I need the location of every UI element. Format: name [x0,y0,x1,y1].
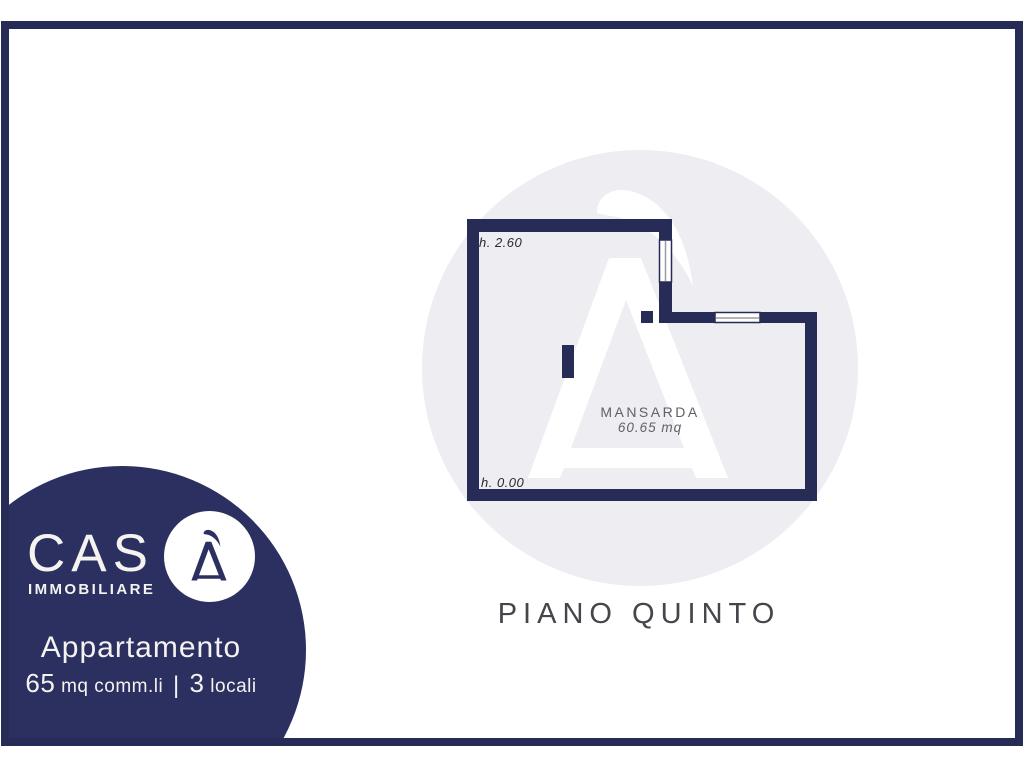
area-value: 65 [25,668,55,698]
rooms-value: 3 [190,668,205,698]
floor-height-label: h. 0.00 [481,476,524,489]
brand-accent-circle [164,511,255,602]
rooms-unit: locali [210,676,256,697]
brand-a-letter-icon [190,528,228,582]
details-separator: | [169,672,184,699]
floor-caption: PIANO QUINTO [424,598,854,631]
room-area-label: 60.65 mq [550,421,750,435]
area-unit: mq comm.li [61,676,163,697]
brand-subtitle: IMMOBILIARE [28,582,155,597]
room-name-label: MANSARDA [550,405,750,419]
badge-clip-area: CAS IMMOBILIARE Appartamento 65 mq comm.… [1,21,1023,746]
brand-badge [1,466,306,746]
ceiling-height-label: h. 2.60 [479,236,522,249]
property-type-label: Appartamento [21,633,261,663]
property-details-line: 65 mq comm.li | 3 locali [9,670,273,697]
brand-name: CAS [27,527,154,580]
real-estate-flyer: h. 2.60 h. 0.00 MANSARDA 60.65 mq PIANO … [0,0,1024,768]
